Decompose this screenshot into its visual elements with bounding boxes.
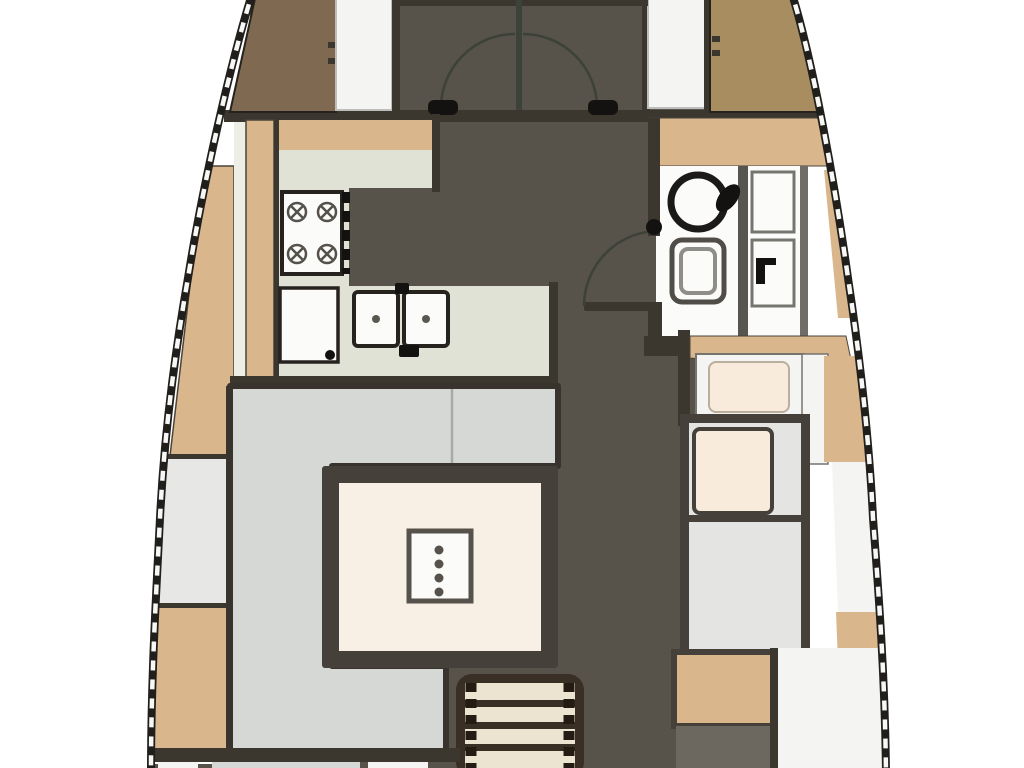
- port-trim-divider-a: [168, 454, 234, 459]
- bottom-sliver: [368, 762, 428, 768]
- galley-wall-right: [549, 282, 558, 382]
- stair-step-edge: [465, 744, 575, 751]
- aft-cabin-floor: [778, 648, 888, 768]
- aft-cabin-wall: [770, 648, 779, 768]
- aft-wood-locker: [674, 652, 774, 726]
- locker-starboard: [648, 0, 706, 108]
- cabinet-handle: [328, 58, 336, 64]
- head-wall-left: [648, 118, 660, 236]
- galley-wood-shelf: [279, 120, 432, 150]
- settee-aft-wall: [150, 748, 460, 762]
- shower-mixer-handle: [756, 258, 765, 284]
- stair-step-edge: [465, 722, 575, 729]
- yacht-floor-plan: [0, 0, 1024, 768]
- refrigerator-latch: [325, 350, 335, 360]
- bottom-sliver: [158, 762, 198, 768]
- port-trim-divider-b: [156, 603, 228, 608]
- stair-step-edge: [465, 700, 575, 707]
- locker-port: [336, 0, 392, 110]
- cabinet-handle: [712, 36, 720, 42]
- forward-wall: [398, 0, 648, 6]
- sink-drain: [422, 315, 430, 323]
- galley-counter-top: [279, 150, 432, 188]
- door-hinge-starboard: [588, 100, 618, 115]
- galley-wood-fiddle: [246, 120, 274, 382]
- sink-drain: [372, 315, 380, 323]
- door-jamb-port: [392, 0, 400, 116]
- chart-table-divider: [689, 515, 801, 522]
- chart-seat-cushion: [694, 429, 772, 513]
- cabinet-handle: [328, 42, 336, 48]
- bottom-sliver: [212, 762, 360, 768]
- door-center-post: [516, 0, 522, 110]
- head-door-leaf: [584, 302, 662, 311]
- galley-wall-upper: [432, 114, 440, 192]
- shower-tray: [752, 172, 794, 232]
- port-wood-trim-lower: [152, 606, 226, 752]
- head-door-stop: [646, 219, 662, 235]
- sink-faucet-lower: [399, 345, 419, 357]
- nav-wall: [678, 330, 690, 426]
- cabinet-handle: [712, 50, 720, 56]
- aft-step-platform: [676, 726, 774, 768]
- sink-faucet: [395, 283, 409, 294]
- door-hinge-port: [428, 100, 458, 115]
- companionway-stairs: [456, 674, 584, 768]
- head-wood-shelf: [650, 118, 836, 166]
- nav-seat-cushion: [709, 362, 789, 412]
- nav-station: [674, 330, 888, 768]
- shower-outer-wall: [800, 166, 808, 336]
- port-locker-sliver: [160, 458, 226, 606]
